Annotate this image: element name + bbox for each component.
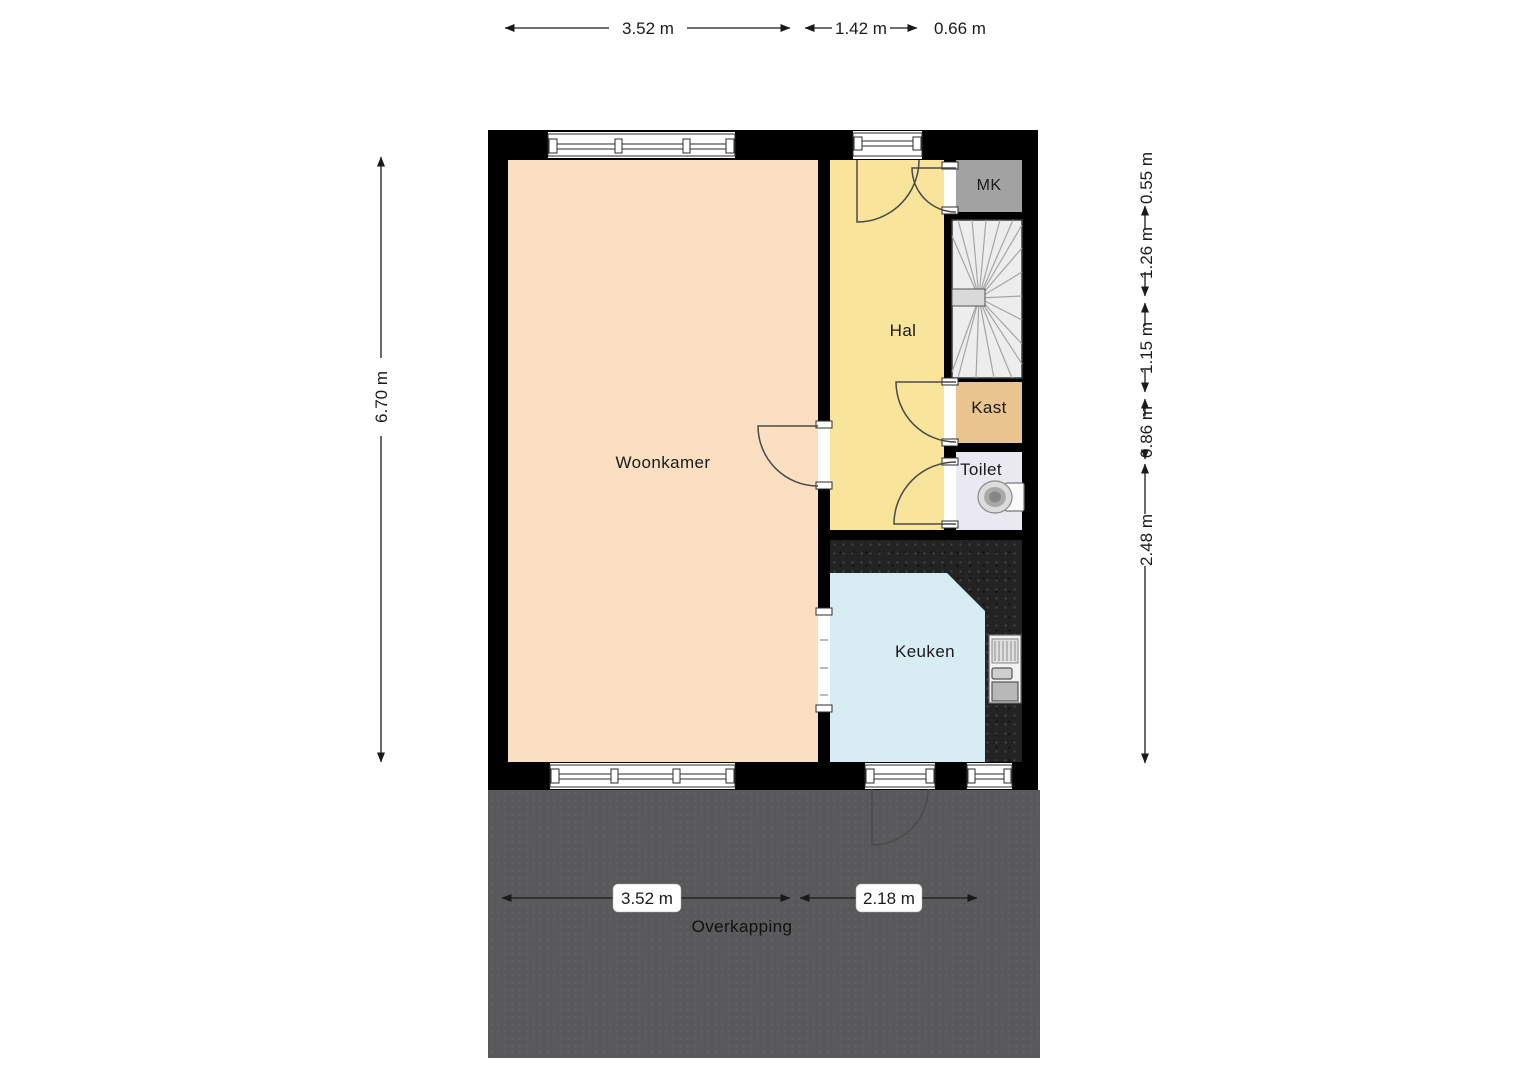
dim-left-1: 6.70 m xyxy=(372,371,391,423)
dimension-right: 0.55 m 1.26 m 1.15 m 0.86 m 2.48 m xyxy=(1137,152,1156,763)
dim-right-2: 1.26 m xyxy=(1137,227,1156,279)
dim-right-3: 1.15 m xyxy=(1137,322,1156,374)
label-keuken: Keuken xyxy=(895,642,955,662)
dim-right-5: 2.48 m xyxy=(1137,514,1156,566)
dim-top-3: 0.66 m xyxy=(934,19,986,38)
dimension-top: 3.52 m 1.42 m 0.66 m xyxy=(505,16,986,39)
label-woonkamer: Woonkamer xyxy=(616,453,711,473)
label-mk: MK xyxy=(977,177,1002,195)
room-hal xyxy=(830,160,944,530)
dim-right-1: 0.55 m xyxy=(1137,152,1156,204)
label-kast: Kast xyxy=(971,398,1007,418)
dimension-left: 6.70 m xyxy=(368,157,394,762)
label-overkapping: Overkapping xyxy=(692,917,793,937)
room-keuken xyxy=(830,573,985,762)
label-hal: Hal xyxy=(890,321,917,341)
dim-right-4: 0.86 m xyxy=(1137,406,1156,458)
dim-top-1: 3.52 m xyxy=(622,19,674,38)
label-toilet: Toilet xyxy=(960,460,1002,480)
dim-top-2: 1.42 m xyxy=(835,19,887,38)
floorplan-canvas: 3.52 m 1.42 m 0.66 m 6.70 m 0.55 m 1.26 … xyxy=(0,0,1528,1080)
